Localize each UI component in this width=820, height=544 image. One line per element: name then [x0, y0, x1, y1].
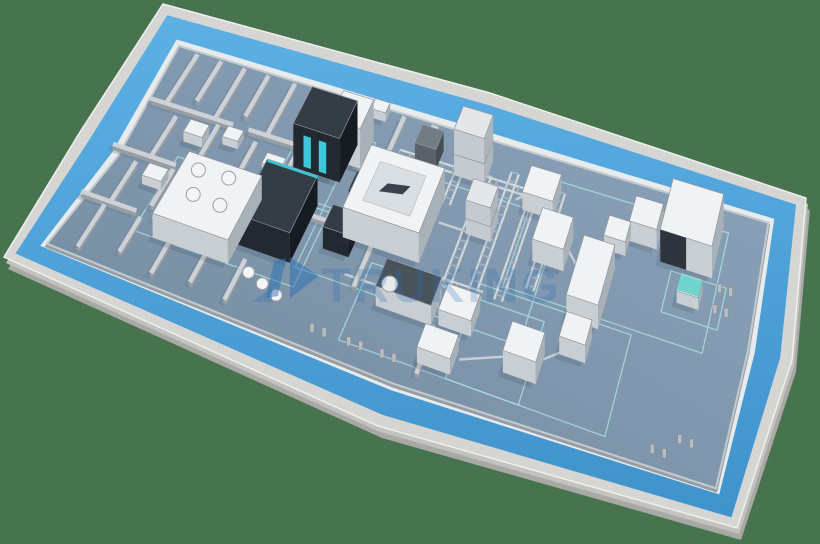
- storage-tank: [256, 278, 268, 290]
- door-frame-post: [650, 444, 654, 453]
- tank-dome: [186, 187, 200, 201]
- door-frame-post: [713, 305, 717, 314]
- door-frame-post: [724, 308, 728, 317]
- door-frame-post: [392, 353, 396, 362]
- door-frame-post: [678, 435, 682, 444]
- tank-dome: [213, 198, 227, 212]
- tank-dome: [191, 163, 205, 177]
- door-frame-post: [729, 287, 733, 296]
- watermark-text: TRUKING: [322, 260, 562, 313]
- storage-tank: [243, 266, 255, 278]
- machine-screen: [304, 135, 311, 169]
- tank-dome: [222, 171, 236, 185]
- machine-screen: [319, 140, 326, 174]
- door-frame-post: [690, 439, 694, 448]
- door-frame-post: [347, 337, 351, 346]
- door-frame-post: [662, 449, 666, 458]
- factory-3d-layout: TRUKING: [0, 0, 820, 544]
- door-frame-post: [380, 349, 384, 358]
- door-frame-post: [310, 323, 314, 332]
- door-frame-post: [322, 328, 326, 337]
- door-frame-post: [718, 284, 722, 293]
- door-frame-post: [359, 341, 363, 350]
